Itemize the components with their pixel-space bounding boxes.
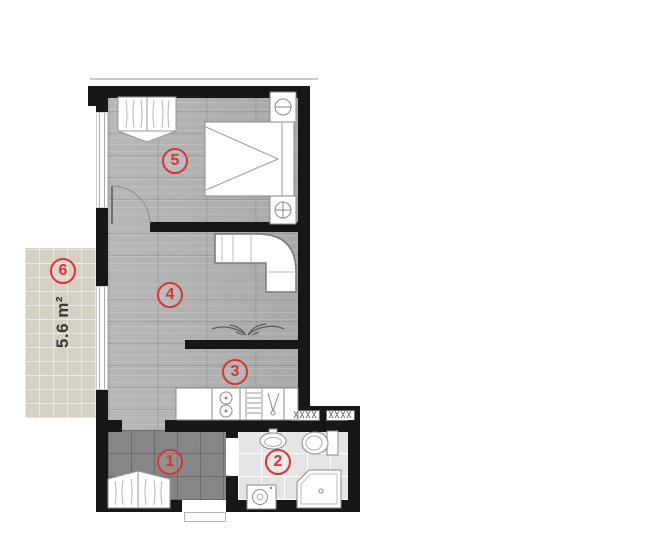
sofa-icon [215,234,296,292]
wardrobe-icon [118,97,176,142]
room-label-kitchen: 3 [222,359,248,385]
toilet-icon [302,431,338,455]
room-label-bedroom: 5 [162,148,188,174]
room-label-bathroom: 2 [265,449,291,475]
bathroom-door [192,438,230,476]
hall-wardrobe-icon [108,471,170,508]
shower-icon [297,470,341,508]
floor-plan: 1 2 3 4 5 6 5.6 m² [0,0,650,551]
room-label-hall: 1 [157,449,183,475]
bed-icon [205,122,294,196]
vent-window-hatch [294,411,351,418]
bedroom-door [112,186,150,224]
balcony-area-label: 5.6 m² [53,282,75,362]
washing-machine-icon [247,485,276,509]
room-label-living-room: 4 [157,282,183,308]
bath-sink-icon [260,429,286,449]
plant-icon [212,324,284,335]
furniture-layer [0,0,650,551]
room-label-balcony: 6 [50,258,76,284]
kitchen-counter [176,388,298,420]
